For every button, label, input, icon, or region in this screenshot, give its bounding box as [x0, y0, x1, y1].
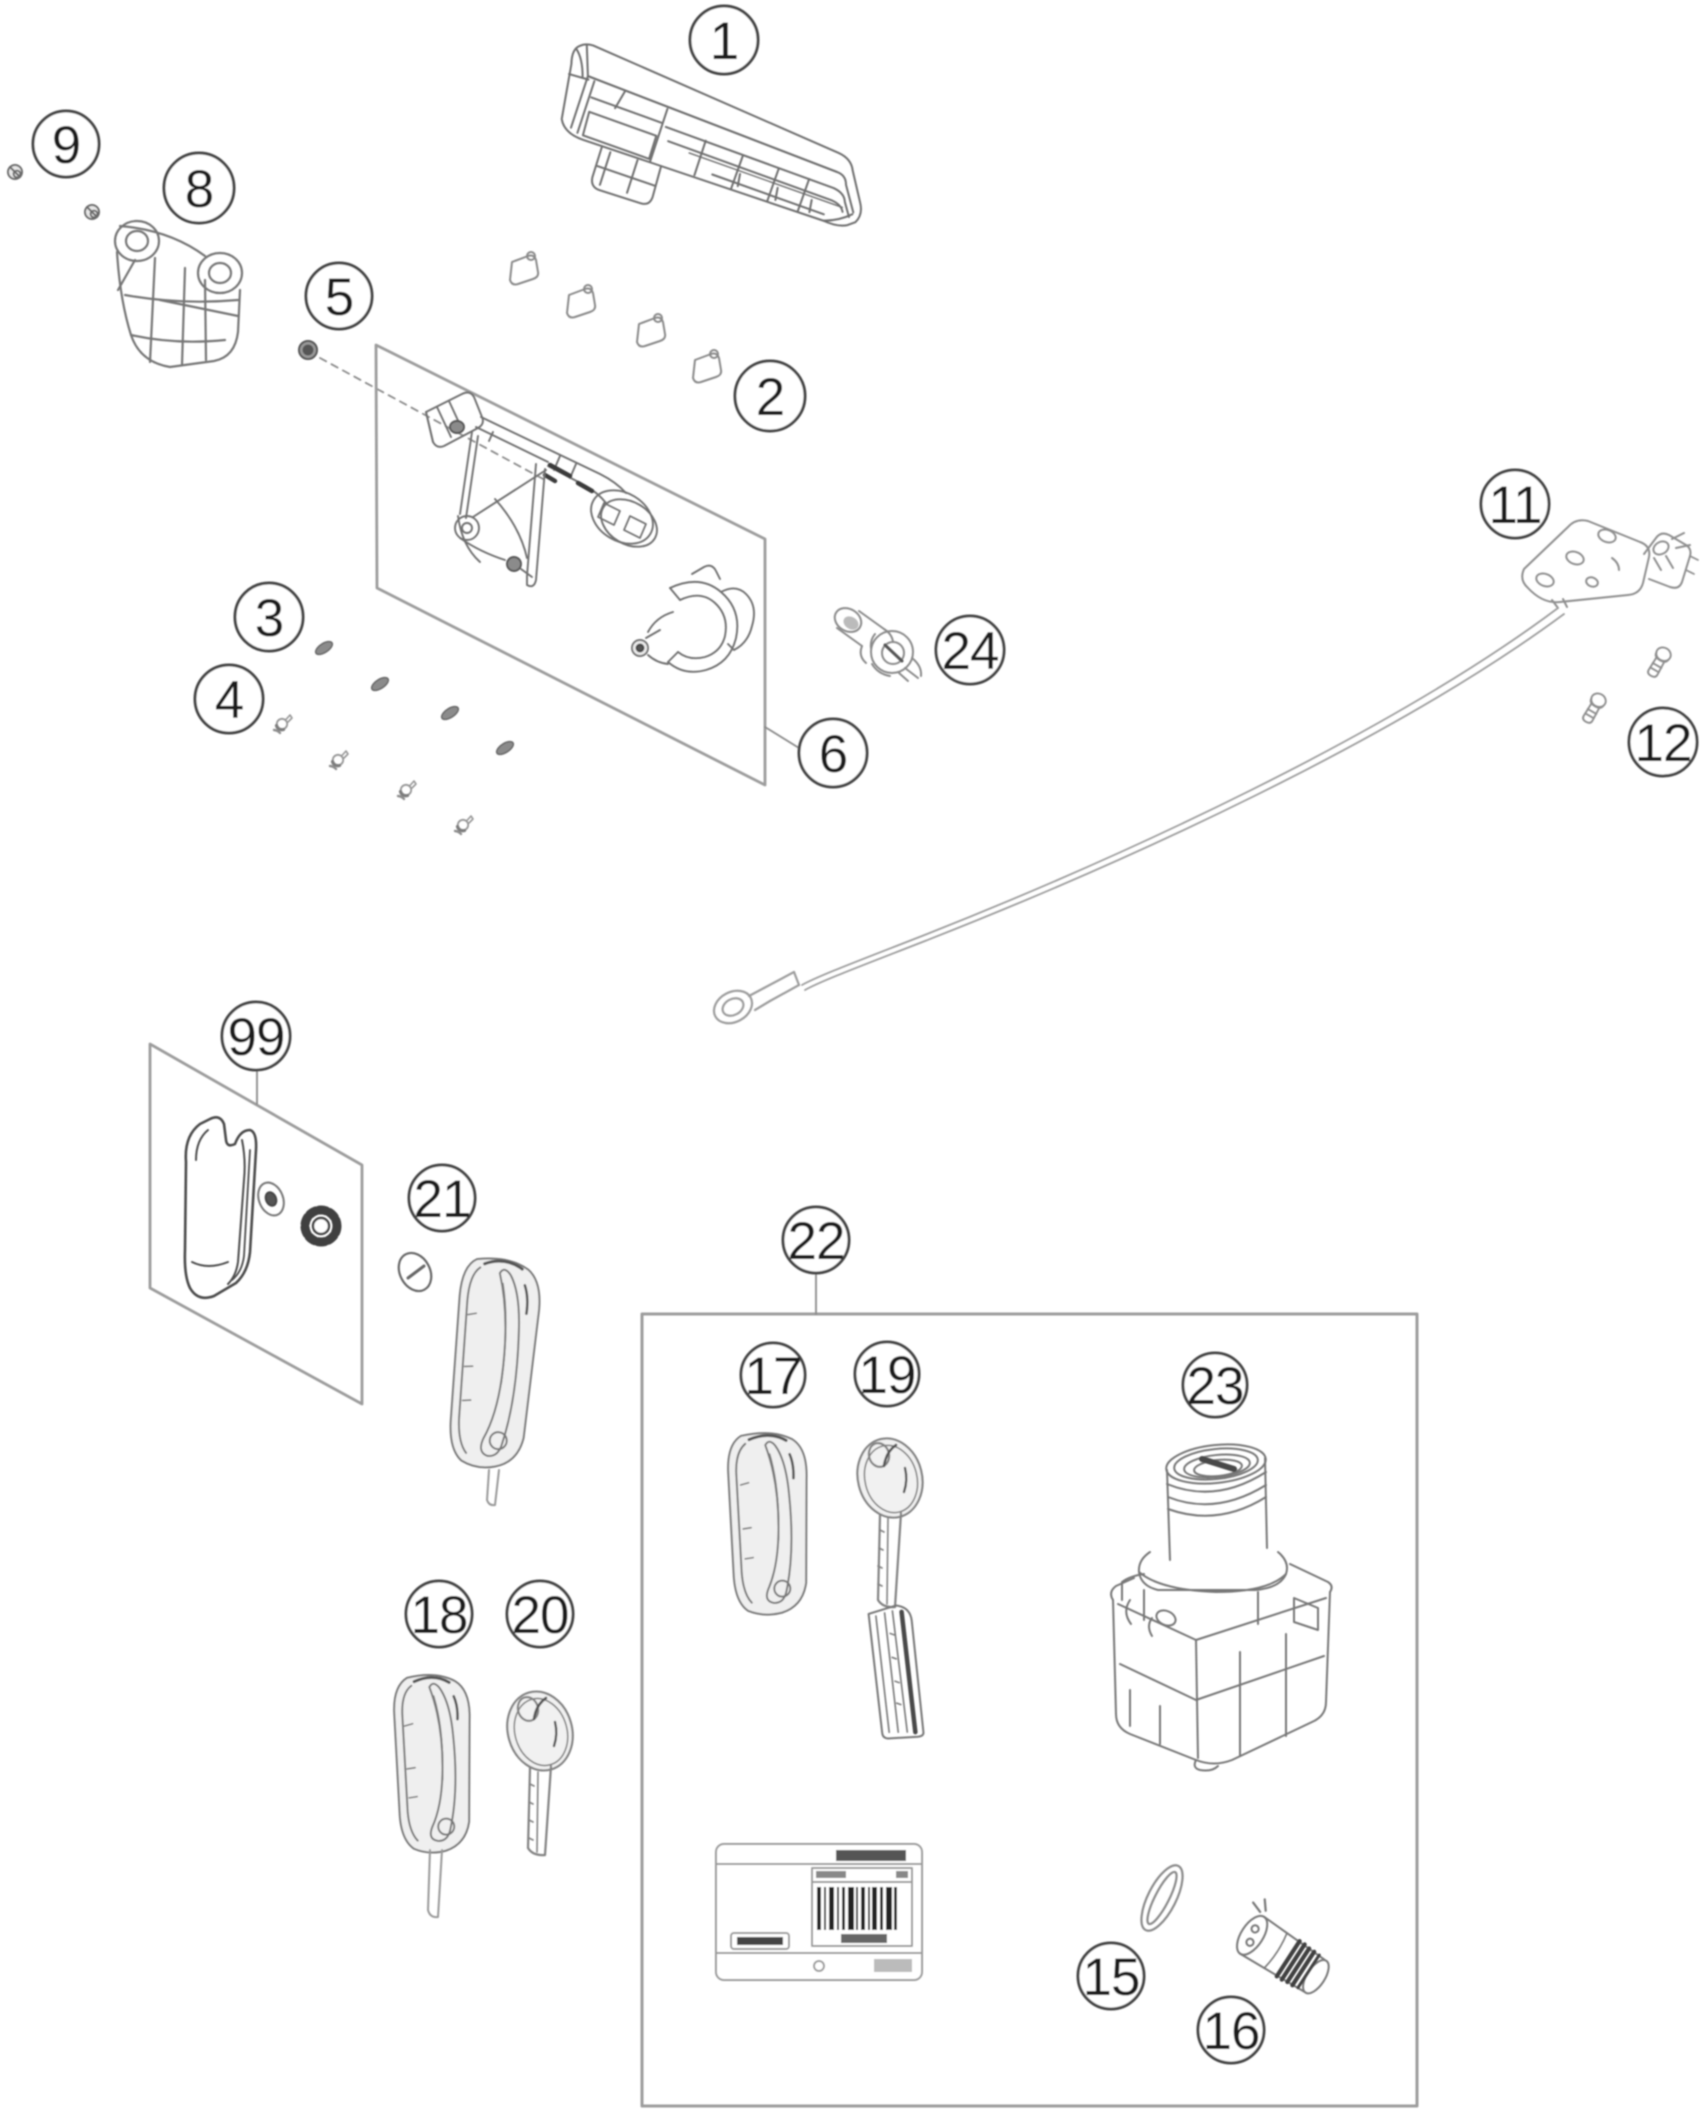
svg-text:12: 12	[1635, 714, 1692, 773]
svg-text:4: 4	[215, 671, 243, 730]
svg-text:6: 6	[819, 725, 847, 784]
svg-text:1: 1	[710, 12, 738, 71]
svg-text:23: 23	[1187, 1357, 1244, 1416]
svg-text:19: 19	[859, 1346, 916, 1405]
svg-text:20: 20	[512, 1586, 569, 1645]
svg-text:8: 8	[185, 160, 213, 219]
svg-text:3: 3	[255, 589, 283, 648]
svg-text:22: 22	[788, 1212, 845, 1271]
svg-text:11: 11	[1488, 476, 1541, 535]
svg-text:16: 16	[1203, 2002, 1260, 2061]
svg-text:99: 99	[228, 1008, 285, 1067]
svg-text:15: 15	[1083, 1948, 1140, 2007]
svg-text:17: 17	[745, 1347, 802, 1406]
svg-text:2: 2	[756, 368, 784, 427]
svg-text:24: 24	[942, 622, 999, 681]
svg-text:18: 18	[411, 1586, 468, 1645]
svg-text:21: 21	[414, 1170, 471, 1229]
svg-text:9: 9	[52, 116, 80, 175]
svg-text:5: 5	[325, 268, 353, 327]
